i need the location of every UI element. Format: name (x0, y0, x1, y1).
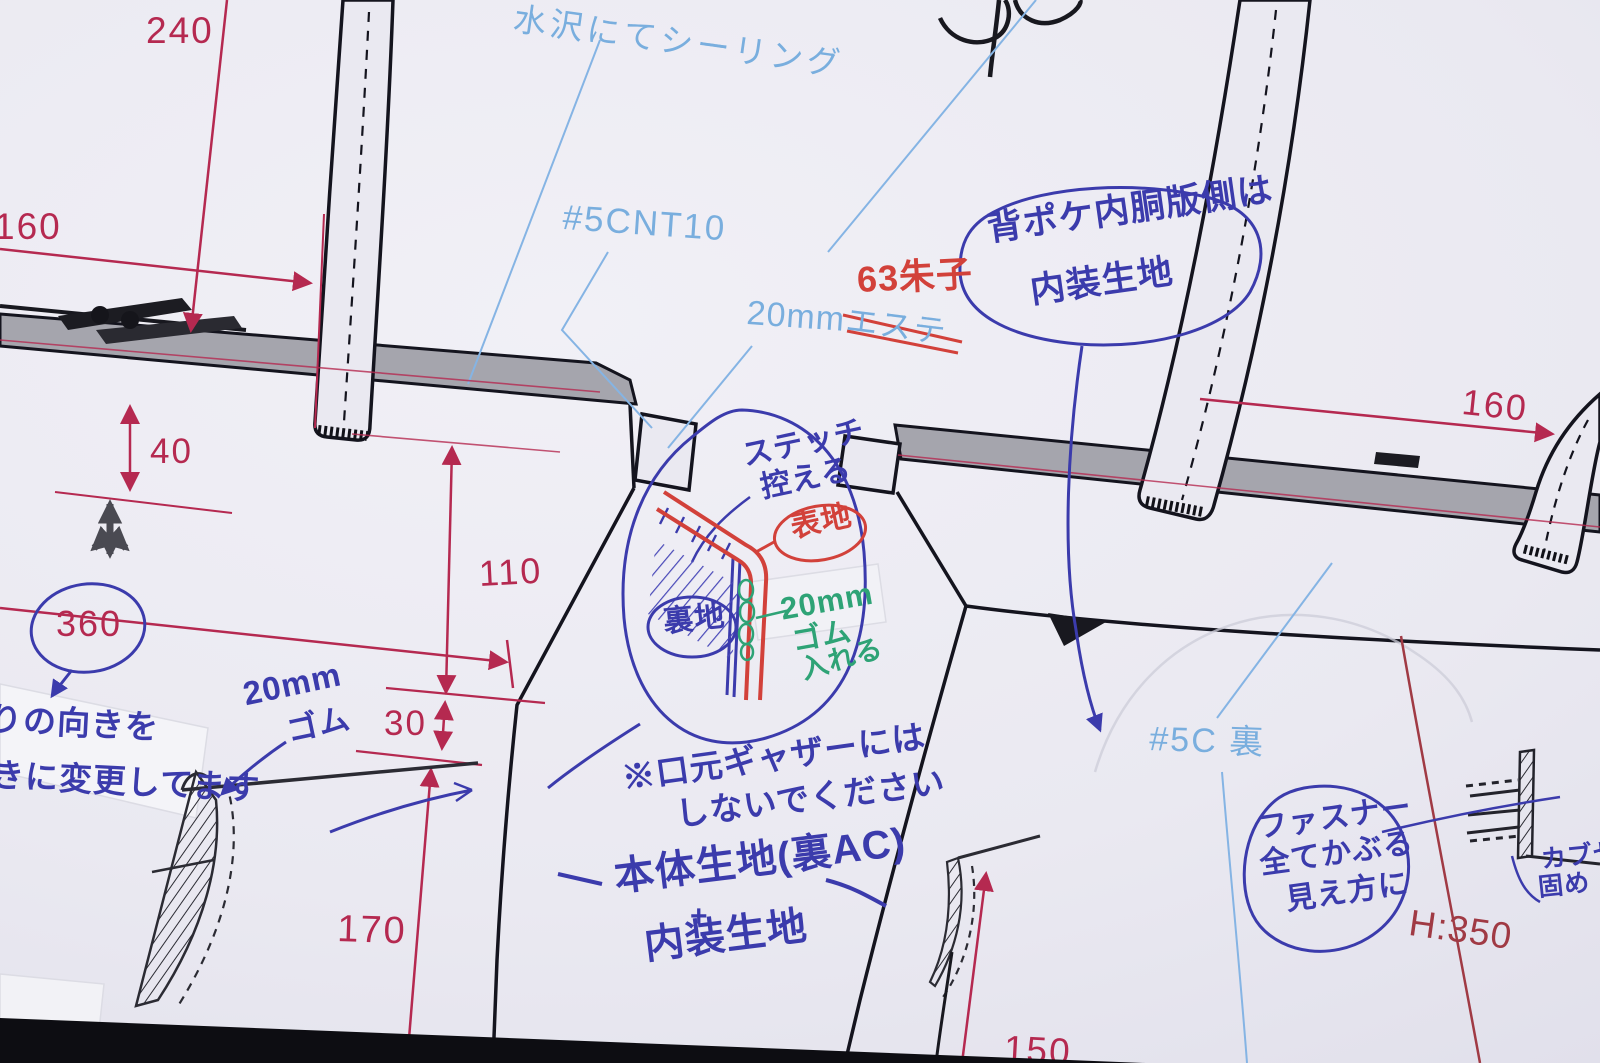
pencil-faint-curve (1095, 615, 1472, 772)
height-dimension-line (1401, 636, 1480, 1063)
flap-detail-sketch (1466, 750, 1600, 864)
top-center-cord-sketch (940, 0, 1080, 77)
print-blue-leaders (468, 0, 1332, 1063)
far-right-strap (1514, 394, 1600, 573)
right-bag-drawing (838, 425, 1600, 1063)
right-pocket-welt-sketch (930, 836, 1040, 1063)
grain-direction-arrow (94, 504, 126, 554)
dimension-lines (0, 0, 1600, 1063)
right-strap (1139, 0, 1310, 519)
pattern-drawing-svg (0, 0, 1600, 1063)
pattern-photo: 水沢にてシーリング #5CNT10 20mm エステ #5C 裏 240 160… (0, 0, 1600, 1063)
pen-blue-annotations (25, 188, 1560, 952)
